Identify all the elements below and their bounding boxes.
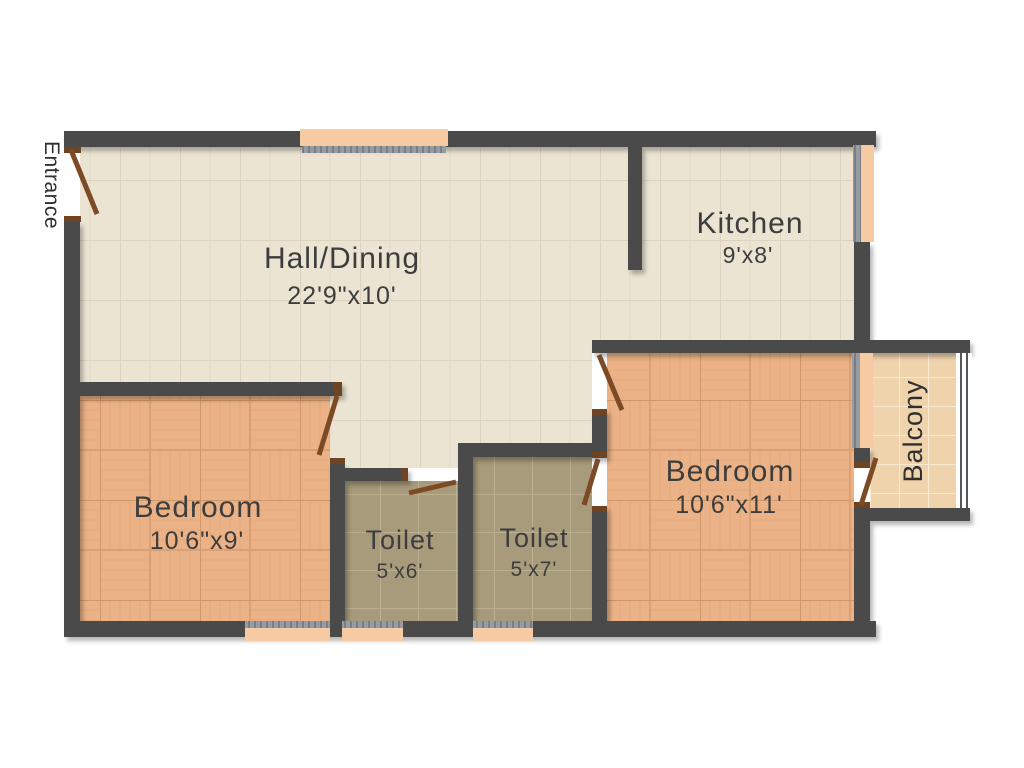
wall-bedroom-right-top [592, 340, 970, 353]
wall-toilet-divider [458, 443, 473, 621]
wall-bedroom-left-east [330, 464, 345, 621]
window-toilet-right-bottom [473, 621, 533, 641]
wall-balcony-divider-stub [854, 448, 870, 462]
window-bedroom-right-balcony [852, 353, 873, 448]
floor-plan: Hall/Dining 22'9"x10' Kitchen 9'x8' Bedr… [0, 0, 1024, 768]
wall-left-top-stub [64, 131, 80, 147]
bedroom-left-label: Bedroom [134, 491, 263, 524]
wall-kitchen-right [854, 242, 870, 352]
bedroom-right-label: Bedroom [666, 455, 795, 488]
bedroom-right-dims: 10'6"x11' [675, 491, 783, 519]
wall-bedroom-right-east [854, 508, 870, 637]
toilet-left-dims: 5'x6' [377, 560, 424, 583]
wall-balcony-bottom [854, 508, 970, 521]
kitchen-dims: 9'x8' [723, 242, 774, 268]
toilet-right-label: Toilet [499, 523, 568, 553]
hall-floor-passage-right [460, 382, 592, 443]
window-top-hall [300, 129, 448, 153]
window-bedroom-left-bottom [245, 621, 330, 641]
hall-floor-passage-left [330, 382, 460, 468]
wall-top [64, 131, 876, 147]
balcony-railing [956, 353, 972, 508]
wall-toilet-bedroom-upper [592, 409, 607, 458]
hall-dims: 22'9"x10' [287, 282, 396, 310]
wall-toilet-right-top [458, 443, 592, 457]
entrance-label: Entrance [40, 141, 63, 229]
wall-toilet-bedroom-lower [592, 506, 607, 621]
wall-toilet-left-top [330, 468, 408, 481]
floor-plan-canvas: Hall/Dining 22'9"x10' Kitchen 9'x8' Bedr… [0, 0, 1024, 768]
hall-floor-mid [80, 340, 592, 382]
hall-label: Hall/Dining [264, 242, 420, 275]
window-kitchen-right [853, 145, 874, 242]
bedroom-left-dims: 10'6"x9' [150, 527, 245, 555]
wall-kitchen-right-top [854, 131, 870, 147]
balcony-label: Balcony [898, 379, 928, 482]
wall-bottom [64, 621, 876, 637]
wall-left [64, 222, 80, 637]
window-toilet-left-bottom [342, 621, 403, 641]
wall-kitchen-divider [628, 147, 642, 270]
wall-bedroom-left-top [64, 382, 342, 396]
kitchen-label: Kitchen [696, 207, 803, 240]
toilet-right-dims: 5'x7' [511, 558, 558, 581]
toilet-left-label: Toilet [365, 525, 434, 555]
